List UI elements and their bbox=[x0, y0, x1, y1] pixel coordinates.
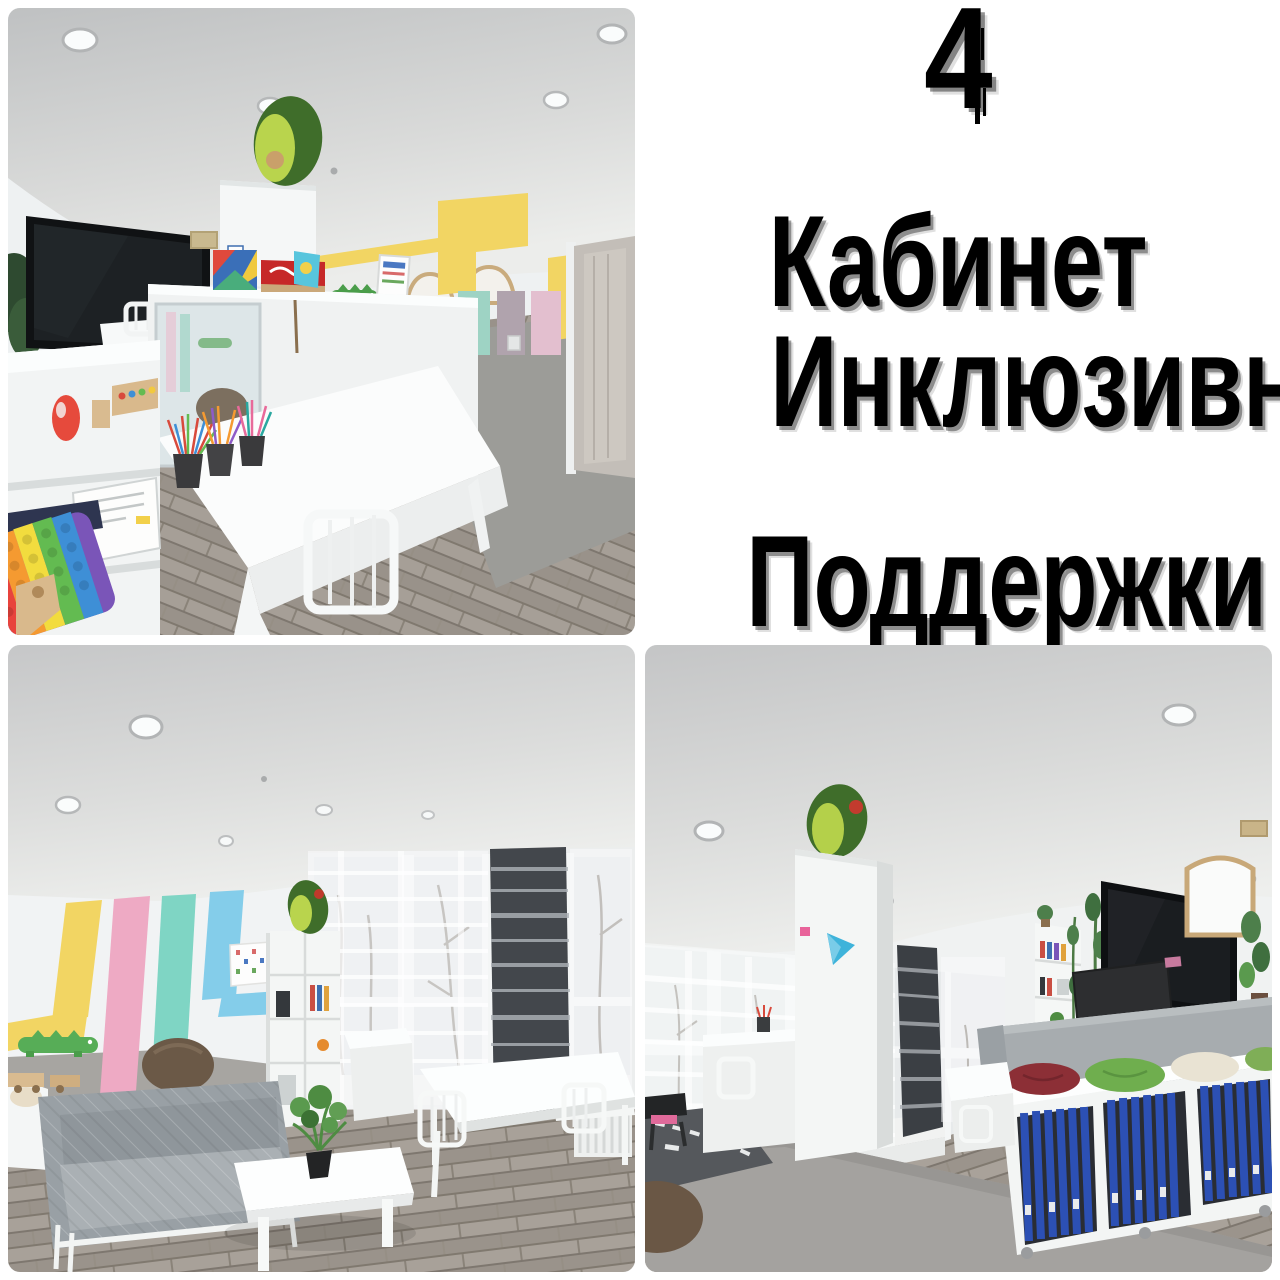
pink-note bbox=[800, 927, 810, 936]
center-desk bbox=[945, 1062, 1015, 1153]
wall-plaque bbox=[1241, 821, 1267, 836]
partition-cabinet bbox=[795, 849, 893, 1161]
sofa-corner-illustration bbox=[8, 645, 635, 1272]
light-switch bbox=[508, 336, 520, 350]
photo-open-classroom bbox=[645, 645, 1272, 1272]
photo-sofa-corner bbox=[8, 645, 635, 1272]
slide-number: 4 bbox=[645, 0, 1272, 131]
door bbox=[566, 236, 635, 478]
glitch-bar bbox=[983, 88, 986, 116]
open-classroom-illustration bbox=[645, 645, 1272, 1272]
photo-classroom-desks bbox=[8, 8, 635, 635]
wall-plaque bbox=[191, 232, 217, 248]
glitch-bar bbox=[975, 80, 980, 124]
glitch-bar bbox=[973, 22, 978, 68]
dark-curtain bbox=[897, 945, 943, 1137]
classroom-illustration bbox=[8, 8, 635, 635]
title-line-3: Поддержки bbox=[645, 516, 1272, 646]
title-line-2: Инклюзивной bbox=[645, 316, 1272, 446]
glitch-bar bbox=[981, 28, 984, 60]
slide-title-block: 4 Кабинет Инклюзивной Поддержки bbox=[645, 8, 1272, 637]
title-line-1: Кабинет bbox=[645, 196, 1272, 326]
